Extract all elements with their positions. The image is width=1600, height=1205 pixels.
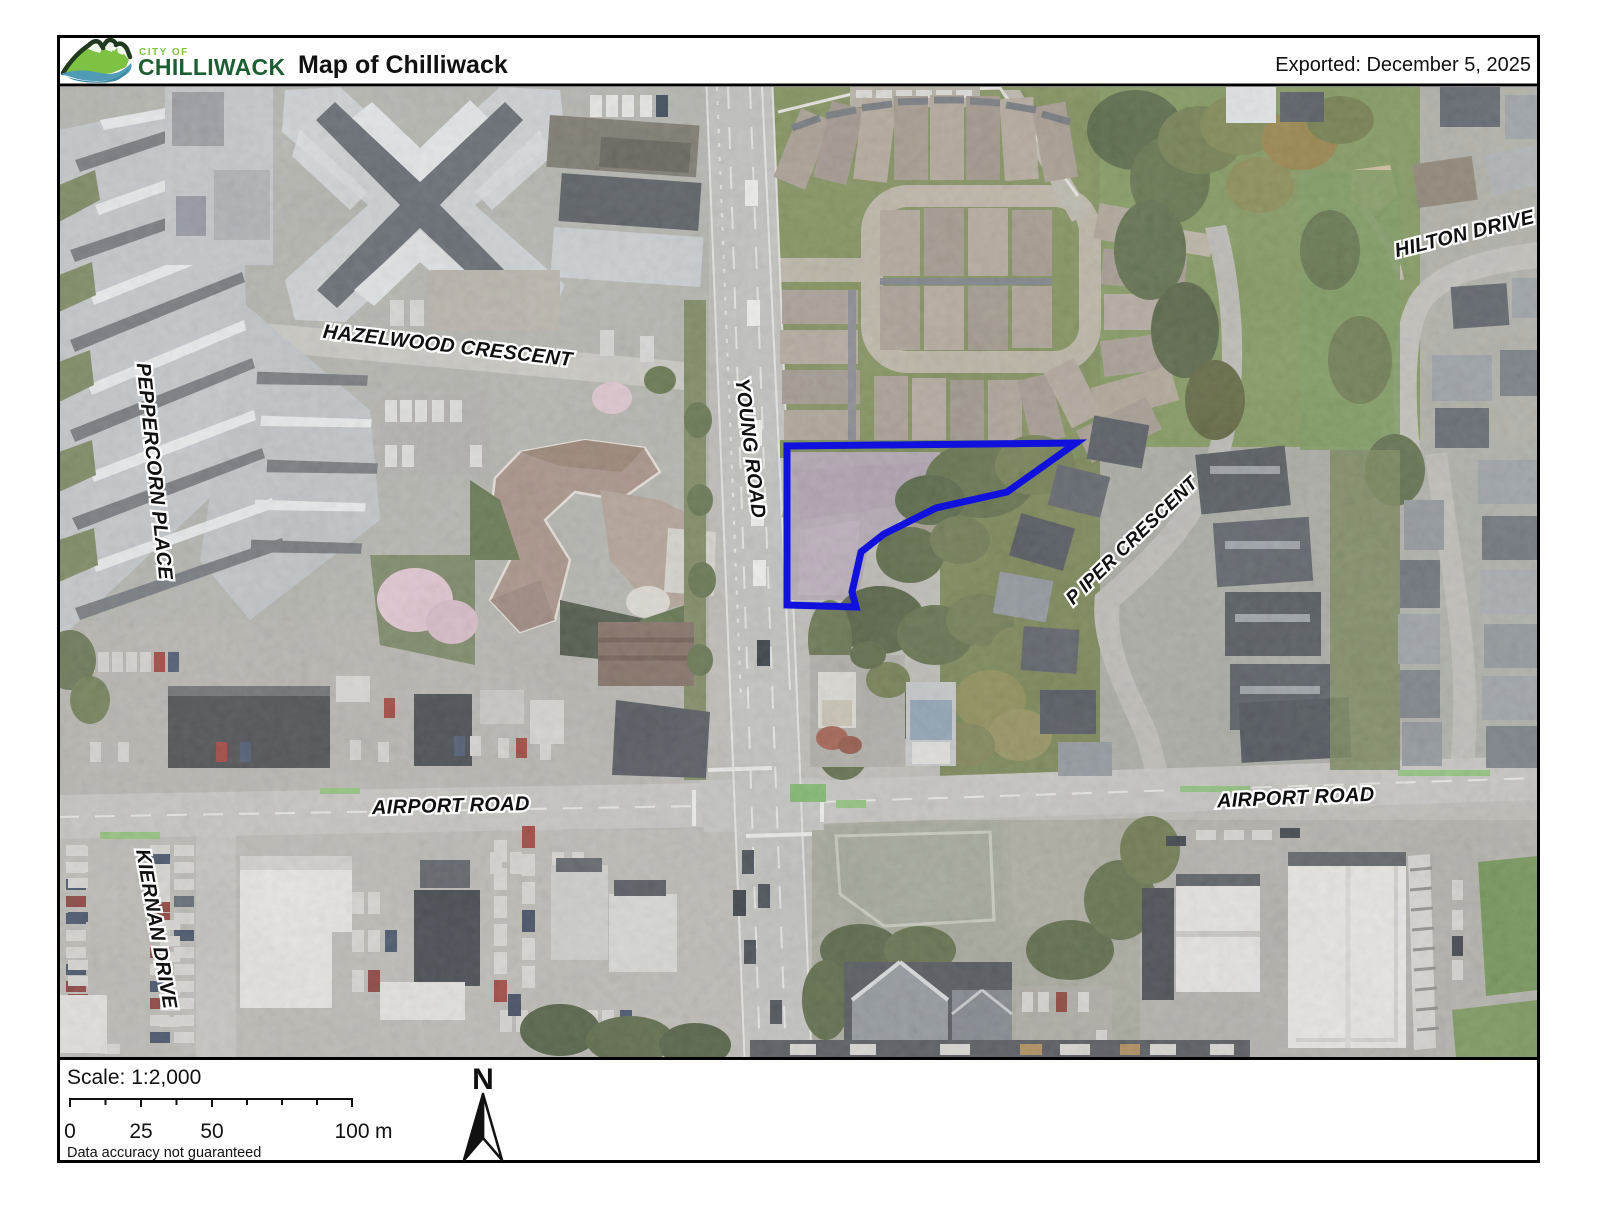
svg-text:Scale: 1:2,000: Scale: 1:2,000 [67,1066,201,1089]
svg-text:0: 0 [64,1120,76,1143]
svg-text:25: 25 [129,1120,152,1143]
svg-text:Data accuracy not guaranteed: Data accuracy not guaranteed [67,1145,261,1161]
svg-text:N: N [472,1063,494,1096]
svg-text:Exported: December 5, 2025: Exported: December 5, 2025 [1275,54,1531,76]
svg-text:Map of Chilliwack: Map of Chilliwack [298,51,508,79]
svg-text:50: 50 [200,1120,223,1143]
svg-text:AIRPORT ROAD: AIRPORT ROAD [371,793,530,819]
svg-text:m: m [375,1120,393,1143]
svg-text:CHILLIWACK: CHILLIWACK [138,54,285,80]
svg-text:100: 100 [334,1120,369,1143]
